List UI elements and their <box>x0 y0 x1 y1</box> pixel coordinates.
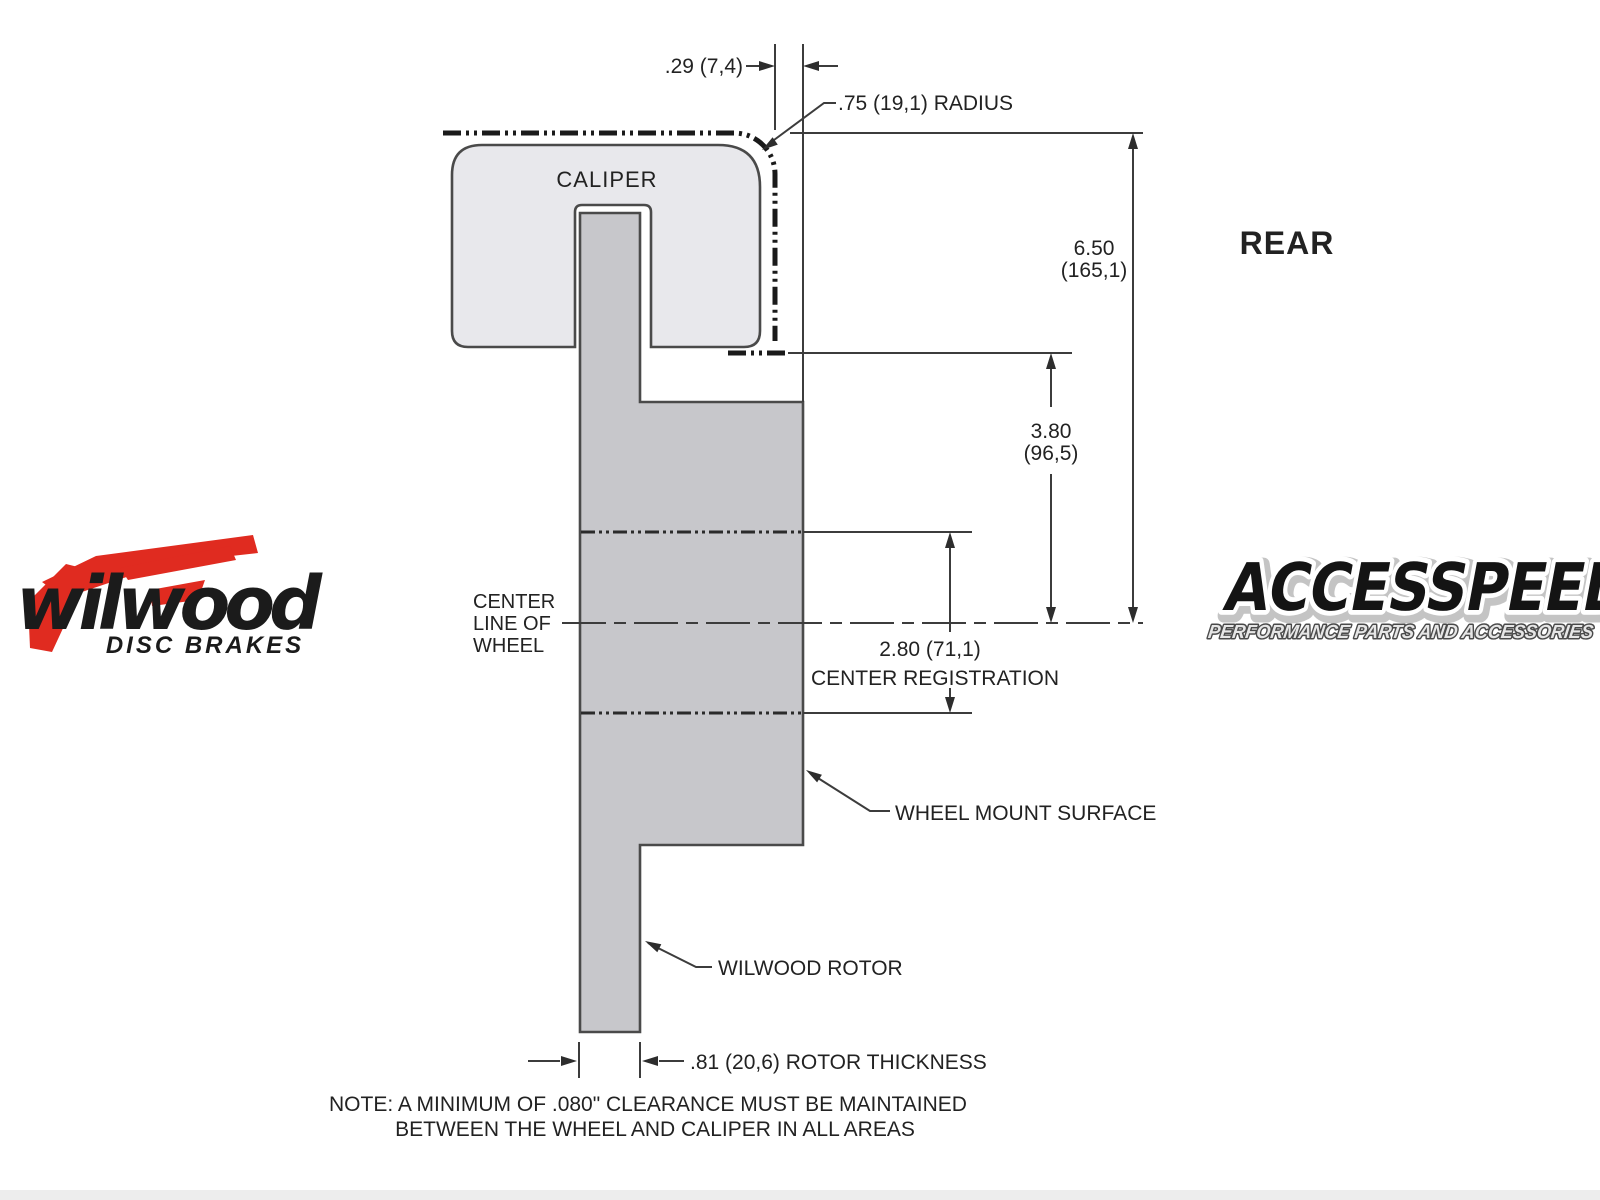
center-line-text-3: WHEEL <box>473 635 544 657</box>
clearance-note: NOTE: A MINIMUM OF .080" CLEARANCE MUST … <box>329 1093 967 1141</box>
note-line-2: BETWEEN THE WHEEL AND CALIPER IN ALL ARE… <box>395 1118 915 1141</box>
dim-center-registration-label: CENTER REGISTRATION <box>811 667 1059 690</box>
dim-clearance-height-metric: (96,5) <box>1024 442 1079 465</box>
dim-radius-text: .75 (19,1) RADIUS <box>838 92 1013 115</box>
dim-radius: .75 (19,1) RADIUS <box>762 92 1013 150</box>
dim-clearance-height: 3.80 (96,5) <box>788 353 1078 623</box>
dim-overall-height: 6.50 (165,1) <box>790 133 1143 623</box>
accesspeed-tagline-text: PERFORMANCE PARTS AND ACCESSORIES <box>1207 621 1595 642</box>
dim-clearance-height-value: 3.80 <box>1031 420 1072 443</box>
bottom-divider-bar <box>0 1190 1600 1200</box>
rear-view-label: REAR <box>1240 225 1335 261</box>
dim-overall-height-value: 6.50 <box>1074 237 1115 260</box>
dim-caliper-offset-text: .29 (7,4) <box>665 55 743 78</box>
label-wilwood-rotor: WILWOOD ROTOR <box>645 941 903 980</box>
brake-diagram-page: .29 (7,4) .75 (19,1) RADIUS 6.50 (165,1)… <box>0 0 1600 1200</box>
accesspeed-logo: ACCESSPEED ACCESSPEED PERFORMANCE PARTS … <box>1207 549 1600 642</box>
wilwood-tagline-text: DISC BRAKES <box>106 632 304 659</box>
center-line-text-2: LINE OF <box>473 613 551 635</box>
technical-drawing: .29 (7,4) .75 (19,1) RADIUS 6.50 (165,1)… <box>0 0 1600 1200</box>
wilwood-logo: wilwood DISC BRAKES <box>16 535 323 659</box>
dim-center-registration-value: 2.80 (71,1) <box>879 638 981 661</box>
caliper-label: CALIPER <box>556 167 657 192</box>
dim-rotor-thickness: .81 (20,6) ROTOR THICKNESS <box>528 1042 987 1078</box>
dim-overall-height-metric: (165,1) <box>1061 259 1128 282</box>
wheel-mount-surface-text: WHEEL MOUNT SURFACE <box>895 802 1156 825</box>
note-line-1: NOTE: A MINIMUM OF .080" CLEARANCE MUST … <box>329 1093 967 1116</box>
label-wheel-mount-surface: WHEEL MOUNT SURFACE <box>806 770 1156 825</box>
wilwood-rotor-text: WILWOOD ROTOR <box>718 957 903 980</box>
center-line-text-1: CENTER <box>473 591 555 613</box>
dim-rotor-thickness-text: .81 (20,6) ROTOR THICKNESS <box>690 1051 987 1074</box>
center-line-of-wheel-label: CENTER LINE OF WHEEL <box>473 591 555 657</box>
accesspeed-logo-text: ACCESSPEED <box>1219 549 1600 626</box>
